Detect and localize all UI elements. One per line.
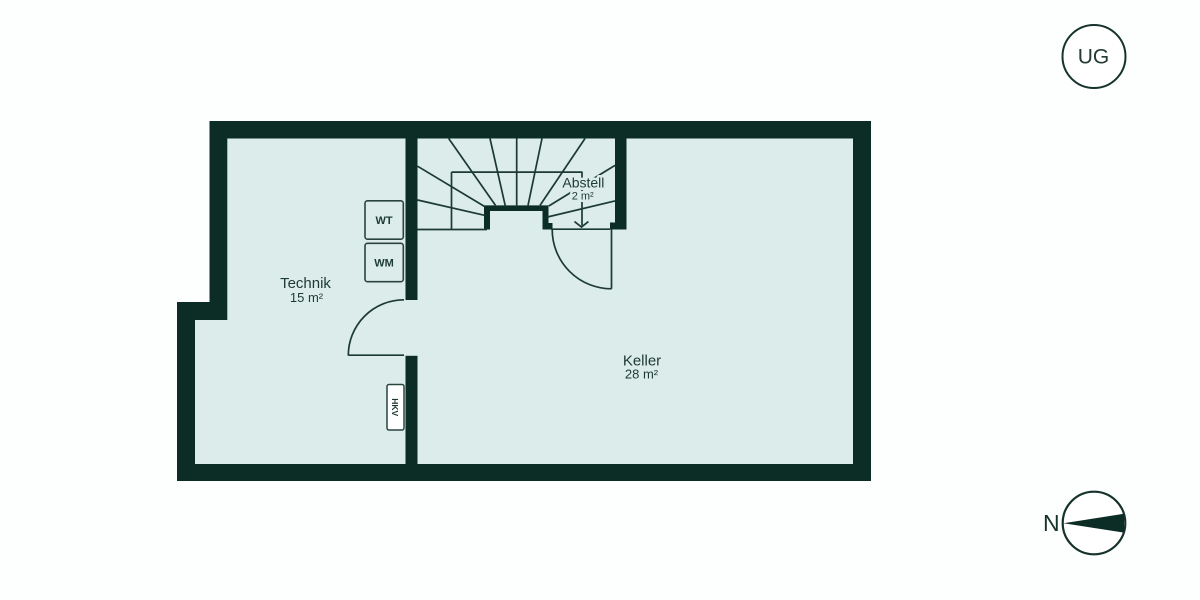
svg-text:28 m²: 28 m² xyxy=(625,367,659,382)
svg-text:2 m²: 2 m² xyxy=(572,191,594,203)
svg-text:15 m²: 15 m² xyxy=(290,290,324,305)
svg-text:HKV: HKV xyxy=(390,398,400,416)
svg-text:WM: WM xyxy=(374,258,394,270)
svg-text:N: N xyxy=(1043,510,1060,536)
svg-text:Abstell: Abstell xyxy=(562,175,604,191)
svg-text:WT: WT xyxy=(375,215,392,227)
svg-text:UG: UG xyxy=(1078,46,1110,69)
